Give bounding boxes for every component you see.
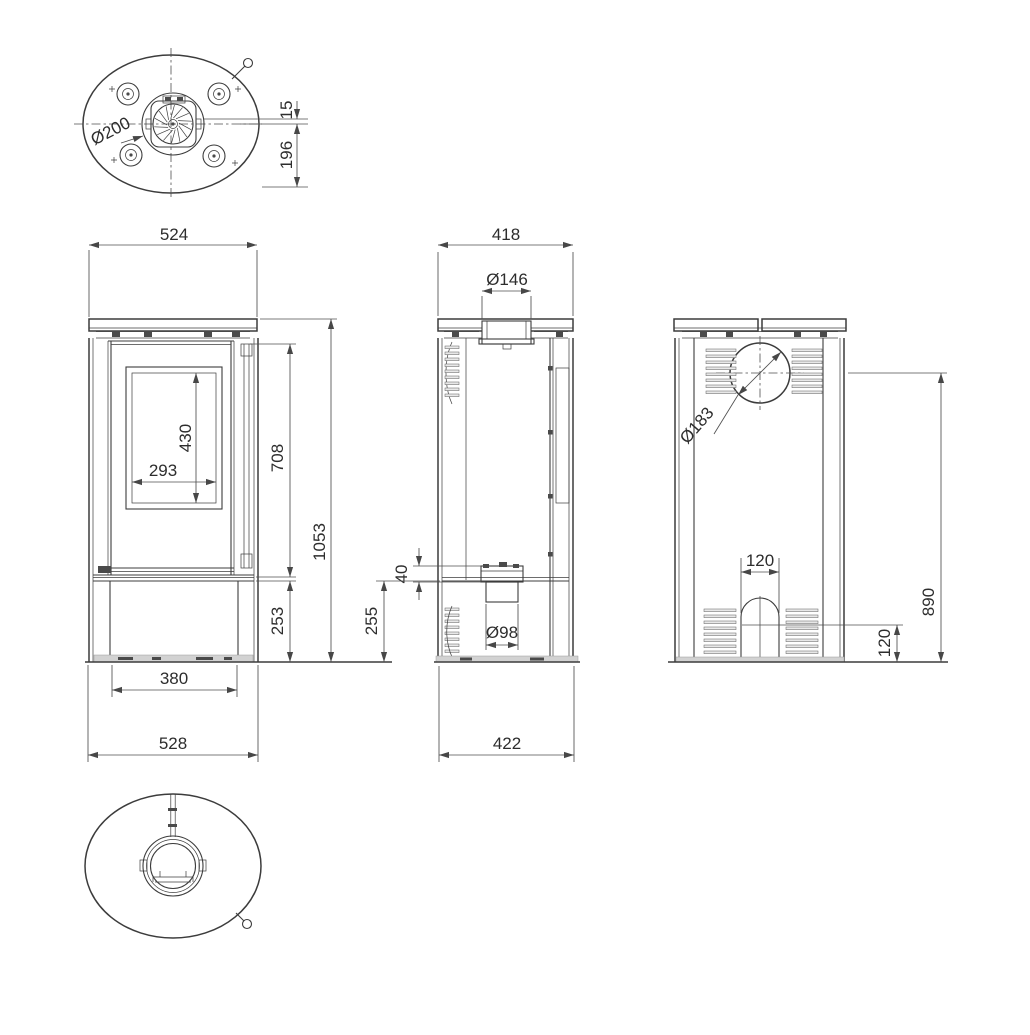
dim-front-glass-height: 430 xyxy=(176,424,195,452)
drawing-canvas: Ø200 15 196 xyxy=(0,0,1030,1030)
rear-top-vent-right xyxy=(792,349,822,394)
bottom-air-inlet xyxy=(143,836,203,896)
side-air-inlet xyxy=(481,562,523,602)
dim-front-overall-width: 528 xyxy=(159,734,187,753)
rear-view: Ø183 120 120 890 xyxy=(668,319,948,662)
side-top-vents xyxy=(445,346,459,397)
dim-rear-arch-width: 120 xyxy=(746,551,774,570)
bottom-body-outline xyxy=(85,794,261,938)
dim-top-flue-diameter: Ø200 xyxy=(88,113,134,149)
front-view: 524 430 293 708 1053 253 380 528 xyxy=(85,225,392,762)
side-rear-shield xyxy=(556,368,569,503)
dim-top-flue-to-rear: 196 xyxy=(277,141,296,169)
dim-top-flue-offset: 15 xyxy=(277,101,296,120)
dim-side-overall-depth: 422 xyxy=(493,734,521,753)
rear-bottom-vent-right xyxy=(786,609,818,654)
front-door xyxy=(93,341,254,575)
side-dimensions: 418 Ø146 40 255 Ø98 422 xyxy=(362,225,574,762)
dim-side-pedestal-height: 255 xyxy=(362,607,381,635)
rear-bottom-vent-left xyxy=(704,609,736,654)
side-view: 418 Ø146 40 255 Ø98 422 xyxy=(362,225,580,762)
dim-rear-arch-height: 120 xyxy=(875,629,894,657)
technical-drawing: Ø200 15 196 xyxy=(0,0,1030,1030)
front-pedestal xyxy=(85,578,392,663)
rear-top-plate-right xyxy=(762,319,846,331)
rear-top-vent-left xyxy=(706,349,736,394)
rear-top-plate-left xyxy=(674,319,758,331)
dim-front-pedestal-height: 253 xyxy=(268,607,287,635)
dim-side-top-plate-depth: 418 xyxy=(492,225,520,244)
bottom-view xyxy=(85,794,261,938)
dim-rear-flue-center-height: 890 xyxy=(919,588,938,616)
front-door-glass xyxy=(126,367,222,509)
dim-front-upper-section-height: 708 xyxy=(268,444,287,472)
dim-rear-flue-diameter: Ø183 xyxy=(676,403,718,447)
dim-front-glass-width: 293 xyxy=(149,461,177,480)
dim-side-flue-collar: Ø146 xyxy=(486,270,528,289)
side-flue-collar xyxy=(479,321,534,349)
dim-front-base-width: 380 xyxy=(160,669,188,688)
dim-front-top-plate-width: 524 xyxy=(160,225,188,244)
dim-side-air-inlet-diameter: Ø98 xyxy=(486,623,518,642)
front-dimensions: 524 430 293 708 1053 253 380 528 xyxy=(88,225,337,762)
dim-front-overall-height: 1053 xyxy=(310,523,329,561)
front-top-plate xyxy=(89,319,257,331)
top-view: Ø200 15 196 xyxy=(74,48,308,200)
